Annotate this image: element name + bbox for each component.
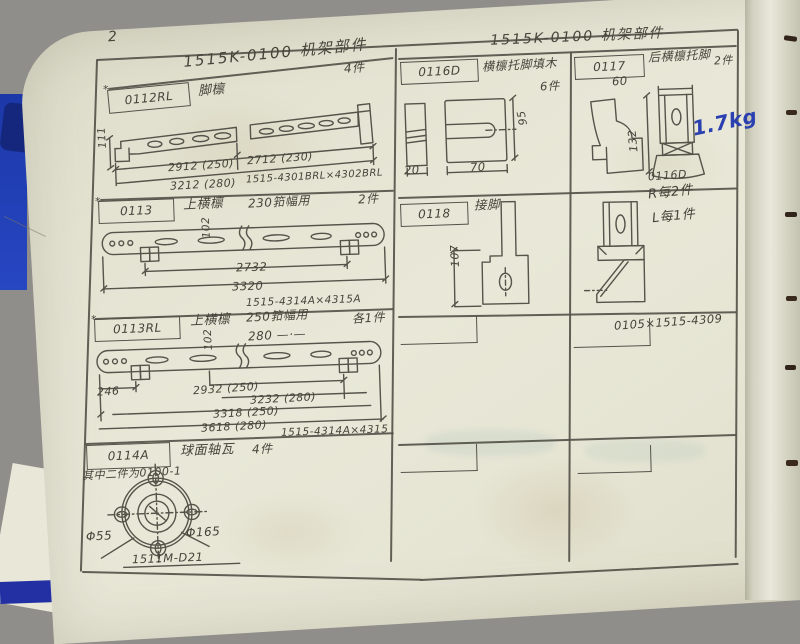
part-qty-0117: 2件 bbox=[714, 55, 734, 68]
part-qty-0116d: 6件 bbox=[540, 79, 560, 92]
block-label-0116d: 0116D bbox=[648, 169, 688, 183]
part-spec-0113: 230筘幅用 bbox=[248, 194, 310, 210]
dim-left-0113rl: 246 bbox=[97, 385, 120, 398]
box-mark: * bbox=[95, 196, 101, 208]
binding-stitch bbox=[786, 296, 797, 301]
box-mark: * bbox=[103, 84, 109, 96]
box-mark: * bbox=[91, 314, 97, 326]
dim-height-0118: 107 bbox=[449, 244, 462, 267]
part-qty-0114a: 4件 bbox=[252, 443, 273, 456]
part-code-0113rl: 0113RL bbox=[113, 322, 162, 336]
part-name-0113: 上横檩 bbox=[183, 197, 224, 213]
binding-stitch bbox=[785, 212, 797, 217]
part-code-box-0113rl: 0113RL bbox=[94, 316, 181, 342]
photo-of-parts-catalog-page: { "page": { "number": "2" }, "header": {… bbox=[0, 0, 800, 600]
part-name-0113rl: 上横檩 bbox=[190, 313, 231, 329]
ref-0114a: 1511M-D21 bbox=[132, 551, 204, 566]
dim-len-b-0113: 3320 bbox=[232, 279, 264, 292]
page-number: 2 bbox=[107, 30, 117, 45]
dim-height-0113: 102 bbox=[201, 216, 213, 238]
part-code-0112rl: 0112RL bbox=[124, 89, 174, 106]
dim-inner-0114a: Φ55 bbox=[86, 529, 113, 543]
dim-thickness-0116d: 20 bbox=[404, 164, 420, 177]
empty-cell-label-tab bbox=[400, 316, 478, 345]
empty-cell-label-tab bbox=[400, 444, 478, 473]
part-name-0114a: 球面轴瓦 bbox=[180, 443, 234, 459]
part-code-0116d: 0116D bbox=[418, 65, 461, 79]
part-qty-0113rl: 各1件 bbox=[352, 311, 386, 325]
dim-height-0117: 132 bbox=[627, 129, 640, 152]
part-name-0112rl: 脚檩 bbox=[197, 83, 225, 99]
part-code-box-0113: 0113 bbox=[98, 198, 175, 224]
part-qty-0113: 2件 bbox=[358, 192, 379, 206]
dim-width-0117: 60 bbox=[612, 75, 628, 88]
part-name-0117: 后横檩托脚 bbox=[648, 48, 711, 64]
dim-outer-0114a: Φ165 bbox=[186, 525, 221, 539]
dim-height-0116d: 95 bbox=[516, 109, 530, 126]
binding-stitch bbox=[786, 460, 798, 466]
empty-cell-label-tab bbox=[577, 445, 652, 474]
dim-height-0112rl: 111 bbox=[97, 126, 109, 148]
part-code-0113: 0113 bbox=[120, 204, 153, 218]
dim-len-a-0113: 2732 bbox=[236, 260, 268, 273]
binding-stitch bbox=[785, 365, 796, 370]
binding-stitch bbox=[786, 110, 797, 115]
dim-height-0113rl: 102 bbox=[203, 328, 215, 350]
drawing-0117-rear-rail-foot bbox=[580, 84, 708, 188]
part-spec-a-0113rl: 250筘幅用 bbox=[246, 308, 308, 324]
part-code-box-0116d: 0116D bbox=[400, 59, 479, 85]
dim-width-0116d: 70 bbox=[470, 161, 486, 174]
part-qty-0112rl: 4件 bbox=[344, 61, 365, 75]
part-code-box-0117: 0117 bbox=[574, 54, 645, 80]
part-code-0117: 0117 bbox=[593, 60, 626, 74]
